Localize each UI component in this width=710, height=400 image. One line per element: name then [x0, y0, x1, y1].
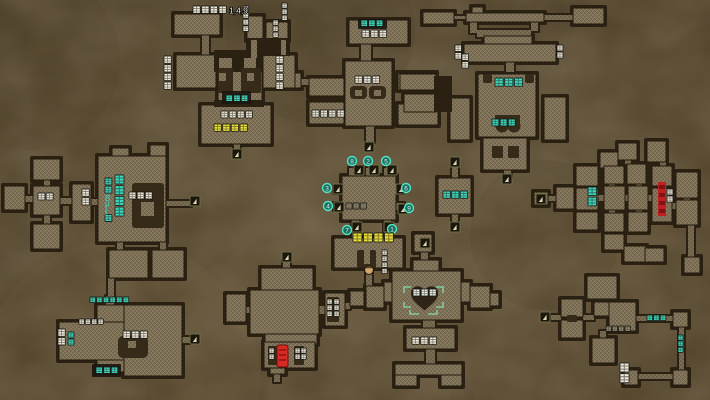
svg-text:3: 3 [325, 185, 329, 192]
svg-text:1,4,9: 1,4,9 [229, 6, 248, 16]
svg-text:7: 7 [345, 227, 349, 234]
svg-text:9: 9 [407, 205, 411, 212]
svg-text:1: 1 [390, 226, 394, 233]
svg-text:2: 2 [366, 158, 370, 165]
svg-text:5: 5 [384, 158, 388, 165]
svg-text:4: 4 [326, 203, 330, 210]
svg-text:8: 8 [350, 158, 354, 165]
svg-text:6: 6 [404, 185, 408, 192]
